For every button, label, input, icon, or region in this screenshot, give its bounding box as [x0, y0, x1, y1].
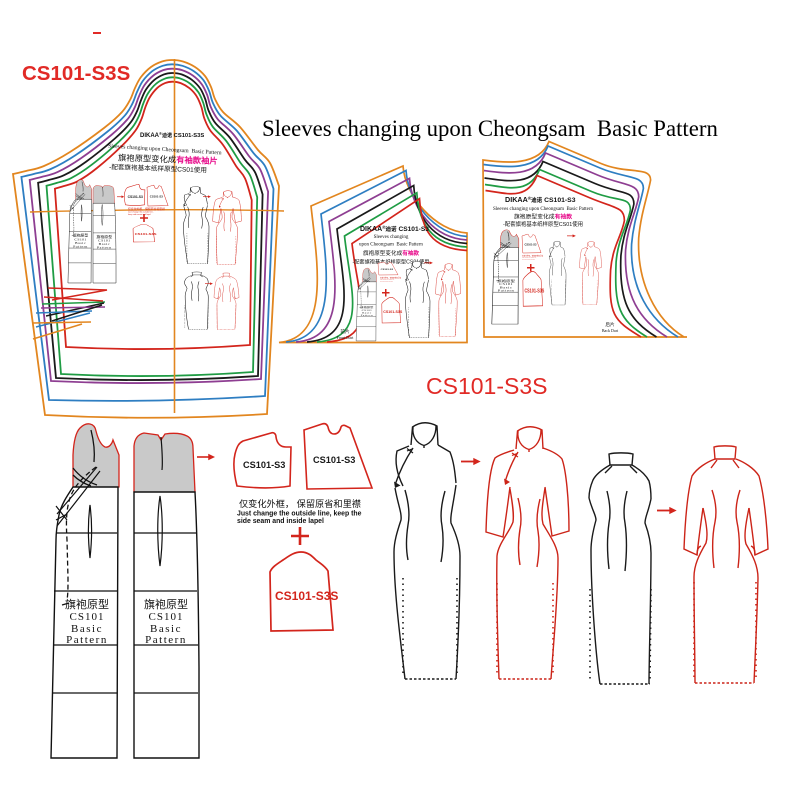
svg-text:前片: 前片 — [340, 328, 350, 335]
svg-text:CS101-S3S: CS101-S3S — [22, 62, 130, 85]
svg-text:side seam and inside lapel: side seam and inside lapel — [237, 518, 324, 525]
svg-text:后片: 后片 — [605, 321, 615, 328]
svg-text:旗袍原型变化成有袖款: 旗袍原型变化成有袖款 — [514, 213, 572, 221]
svg-text:仅变化外框， 保留原省和里襟: 仅变化外框， 保留原省和里襟 — [239, 498, 361, 509]
svg-text:DIKAA®迪诺 CS101-S3: DIKAA®迪诺 CS101-S3 — [505, 195, 576, 204]
svg-text:Just change the outside line,: Just change the outside line, keep the — [237, 511, 362, 518]
svg-text:Front Dart: Front Dart — [337, 335, 355, 340]
svg-text:DIKAA®迪诺 CS101-S3: DIKAA®迪诺 CS101-S3 — [360, 224, 429, 233]
svg-text:-配套旗袍基本纸样原型CS01使用: -配套旗袍基本纸样原型CS01使用 — [503, 220, 583, 228]
svg-text:Back Dart: Back Dart — [602, 328, 619, 333]
svg-text:CS101-S3S: CS101-S3S — [426, 373, 547, 399]
svg-text:旗袍原型变化成有袖款: 旗袍原型变化成有袖款 — [363, 249, 419, 257]
svg-text:Sleeves changing upon Cheongsa: Sleeves changing upon Cheongsam Basic Pa… — [262, 116, 718, 141]
svg-text:DIKAA®迪诺 CS101-S3S: DIKAA®迪诺 CS101-S3S — [140, 131, 204, 139]
svg-text:Sleeves changing: Sleeves changing — [374, 235, 409, 240]
svg-text:upon Cheongsam Basic Pattern: upon Cheongsam Basic Pattern — [359, 243, 423, 248]
svg-text:Sleeves changing upon Cheongsa: Sleeves changing upon Cheongsam Basic Pa… — [493, 207, 593, 212]
